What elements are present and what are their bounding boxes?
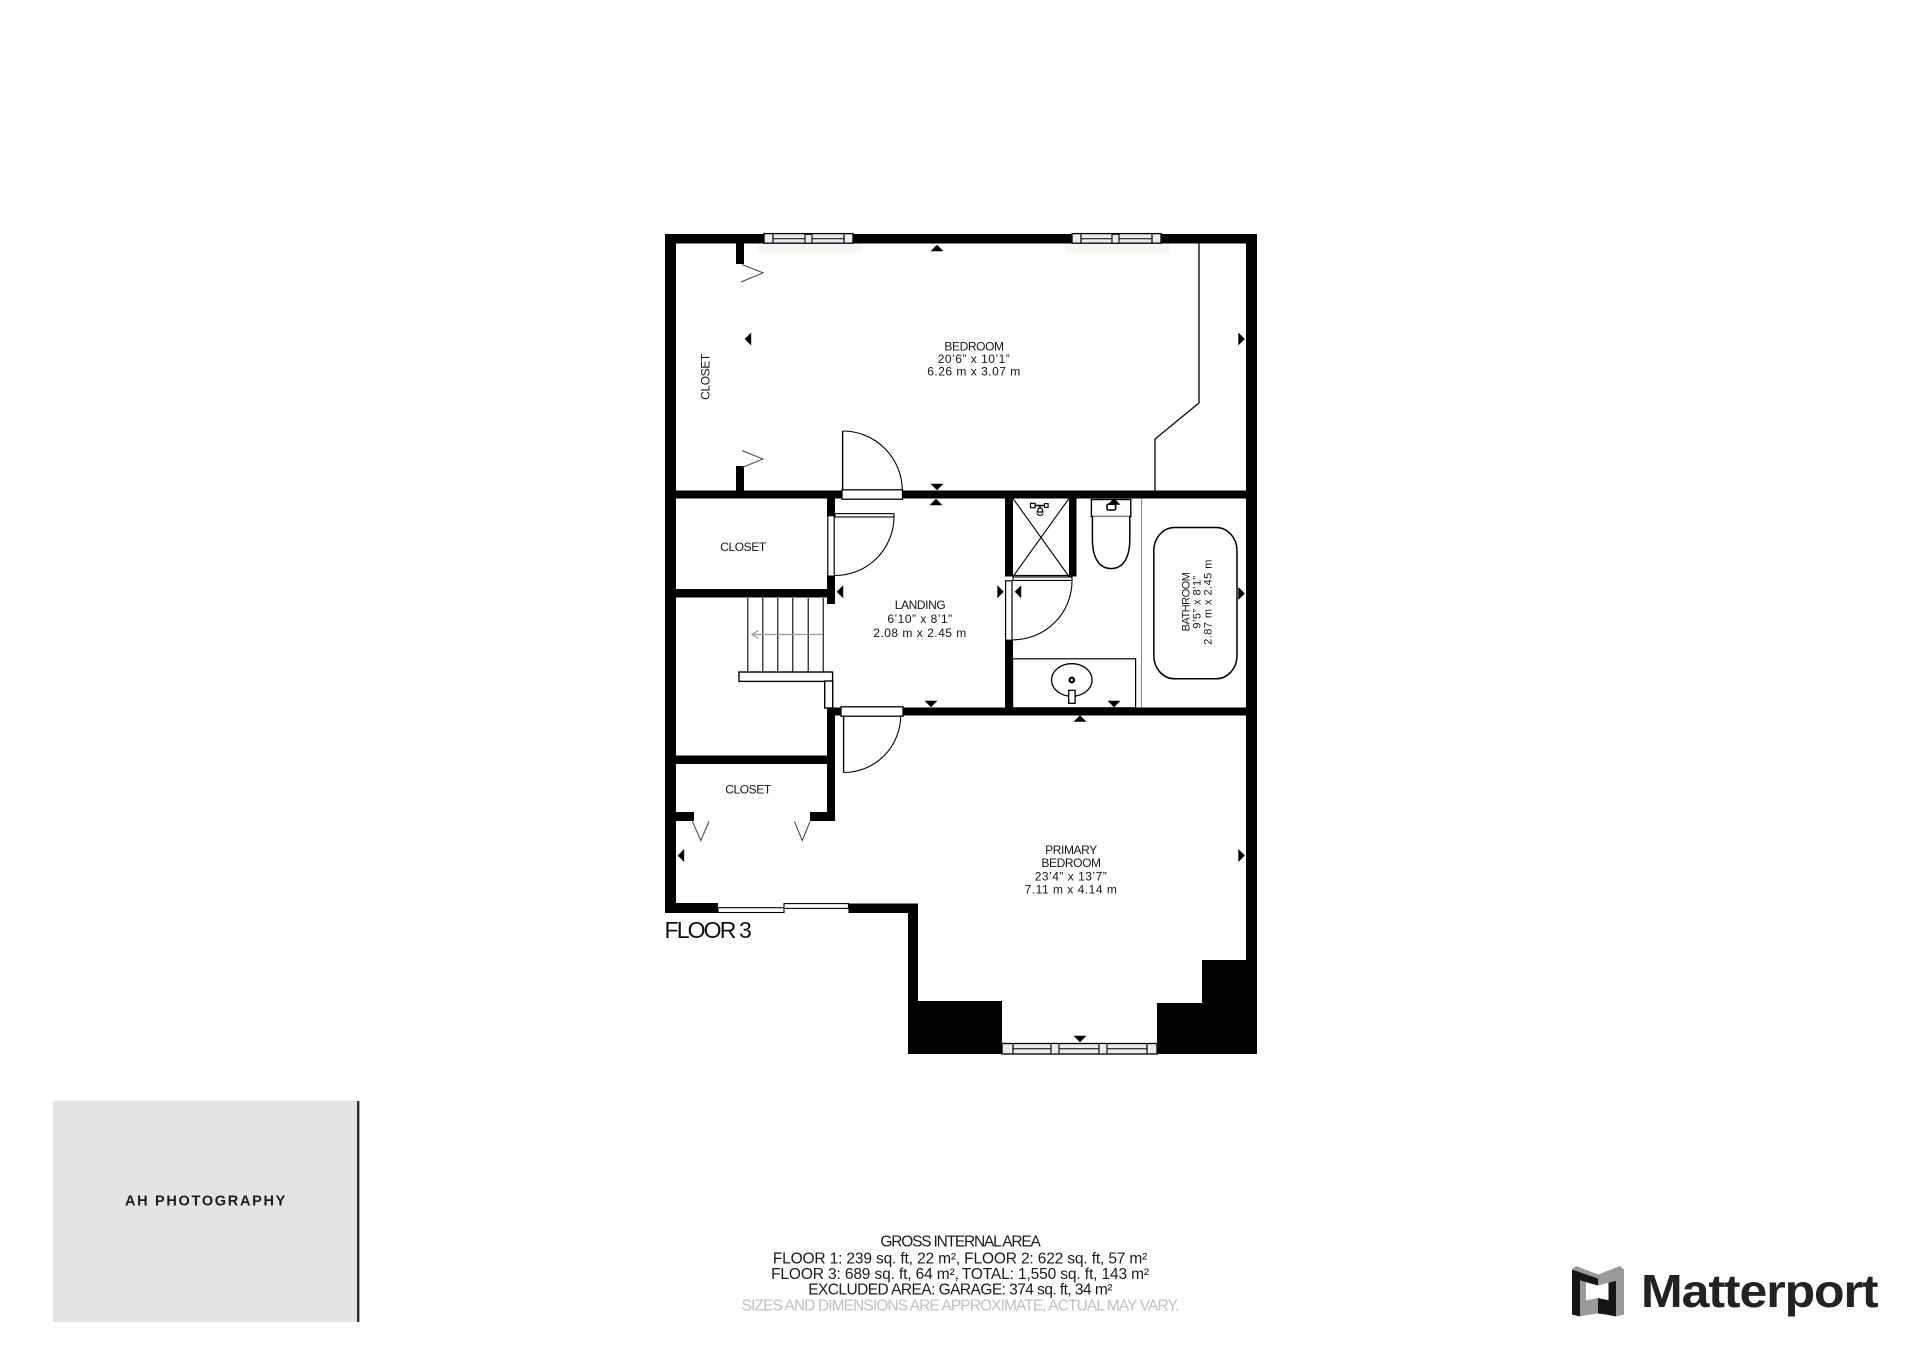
svg-text:2.08 m x 2.45 m: 2.08 m x 2.45 m	[873, 626, 967, 640]
svg-text:BEDROOM: BEDROOM	[1041, 856, 1101, 870]
svg-text:FLOOR 3: 689 sq. ft, 64 m², TO: FLOOR 3: 689 sq. ft, 64 m², TOTAL: 1,550…	[771, 1266, 1149, 1283]
svg-text:CLOSET: CLOSET	[720, 540, 767, 554]
svg-text:GROSS INTERNAL AREA: GROSS INTERNAL AREA	[880, 1233, 1041, 1250]
svg-text:SIZES AND DIMENSIONS ARE APPRO: SIZES AND DIMENSIONS ARE APPROXIMATE, AC…	[742, 1298, 1179, 1315]
svg-text:6.26 m x 3.07 m: 6.26 m x 3.07 m	[927, 364, 1021, 378]
svg-text:7.11 m x 4.14 m: 7.11 m x 4.14 m	[1025, 883, 1118, 897]
svg-text:LANDING: LANDING	[895, 598, 946, 612]
svg-text:6’10” x 8’1”: 6’10” x 8’1”	[887, 612, 952, 626]
svg-text:Matterport: Matterport	[1641, 1265, 1878, 1317]
svg-text:FLOOR 3: FLOOR 3	[665, 917, 752, 943]
svg-text:23’4” x 13’7”: 23’4” x 13’7”	[1035, 869, 1108, 883]
svg-text:CLOSET: CLOSET	[725, 782, 772, 796]
svg-text:EXCLUDED AREA: GARAGE: 374 sq.: EXCLUDED AREA: GARAGE: 374 sq. ft, 34 m²	[808, 1282, 1112, 1299]
svg-text:FLOOR 1: 239 sq. ft, 22 m², FL: FLOOR 1: 239 sq. ft, 22 m², FLOOR 2: 622…	[773, 1250, 1147, 1267]
svg-text:2.87 m x 2.45 m: 2.87 m x 2.45 m	[1202, 559, 1214, 645]
svg-text:PRIMARY: PRIMARY	[1045, 843, 1097, 857]
svg-text:AH PHOTOGRAPHY: AH PHOTOGRAPHY	[125, 1194, 287, 1210]
svg-text:CLOSET: CLOSET	[699, 353, 713, 400]
